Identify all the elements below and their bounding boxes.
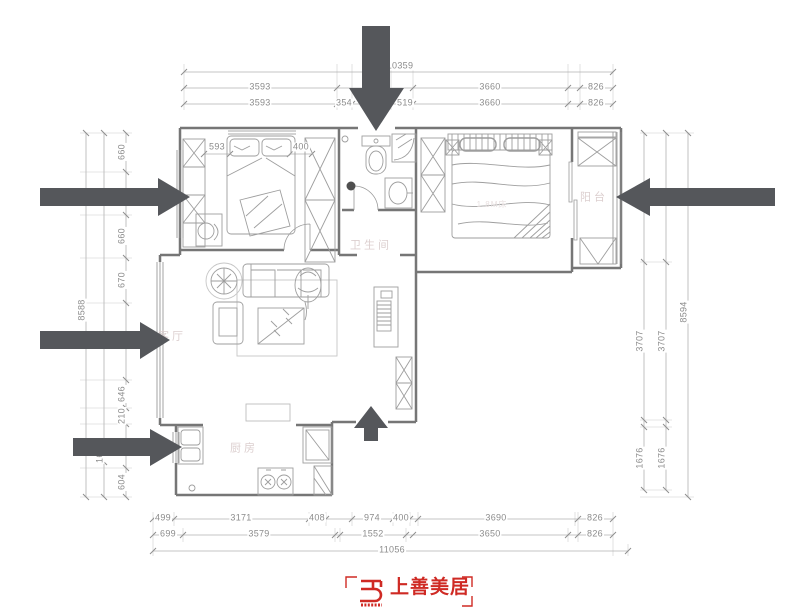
left-middle-arrow-icon bbox=[40, 322, 170, 359]
small-up-arrow-icon bbox=[354, 406, 388, 441]
left-upper-arrow-icon bbox=[40, 178, 190, 216]
direction-arrows bbox=[0, 0, 800, 613]
right-arrow-icon bbox=[616, 178, 775, 216]
left-lower-arrow-icon bbox=[73, 429, 182, 466]
entry-down-arrow-icon bbox=[349, 26, 404, 131]
floor-plan-page: 1035935933660826359335451936608265934004… bbox=[0, 0, 800, 613]
